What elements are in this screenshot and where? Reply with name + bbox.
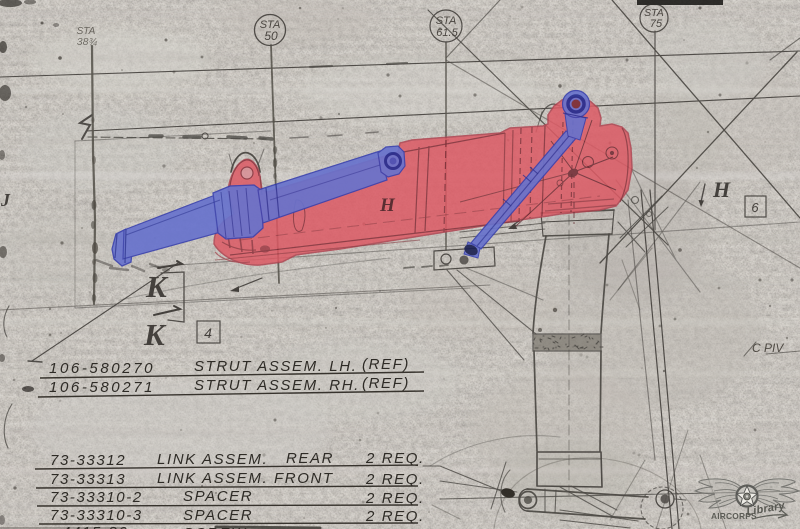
svg-text:73-33312: 73-33312 — [50, 452, 126, 469]
svg-text:STRUT ASSEM. RH.: STRUT ASSEM. RH. — [194, 377, 360, 394]
svg-text:SCREW: SCREW — [183, 525, 247, 529]
svg-text:61.5: 61.5 — [436, 27, 458, 39]
svg-text:50: 50 — [264, 29, 278, 43]
svg-text:73-33310-2: 73-33310-2 — [50, 489, 143, 506]
svg-text:38¾: 38¾ — [77, 36, 98, 48]
svg-text:SPACER: SPACER — [183, 507, 253, 524]
svg-text:73-33313: 73-33313 — [50, 471, 126, 488]
svg-text:K: K — [145, 269, 169, 304]
svg-text:6: 6 — [751, 200, 759, 215]
svg-text:106-580271: 106-580271 — [49, 379, 155, 396]
svg-text:LINK ASSEM. FRONT: LINK ASSEM. FRONT — [157, 470, 334, 487]
svg-text:LINK ASSEM.: LINK ASSEM. — [157, 451, 268, 468]
svg-text:(REF): (REF) — [362, 375, 410, 392]
svg-text:4: 4 — [204, 325, 212, 341]
svg-text:H: H — [712, 177, 731, 202]
svg-text:STA: STA — [436, 15, 457, 27]
svg-text:K: K — [143, 317, 167, 352]
svg-text:J: J — [0, 190, 11, 210]
svg-text:75: 75 — [650, 18, 663, 30]
svg-text:106-580270: 106-580270 — [49, 360, 155, 377]
svg-text:(REF): (REF) — [362, 356, 410, 373]
svg-text:STRUT ASSEM. LH.: STRUT ASSEM. LH. — [194, 358, 357, 375]
svg-text:H: H — [379, 195, 396, 216]
svg-text:73-33310-3: 73-33310-3 — [50, 507, 143, 524]
svg-text:REAR: REAR — [286, 450, 334, 467]
svg-text:4415-86: 4415-86 — [62, 524, 128, 529]
svg-text:SPACER: SPACER — [183, 488, 253, 505]
